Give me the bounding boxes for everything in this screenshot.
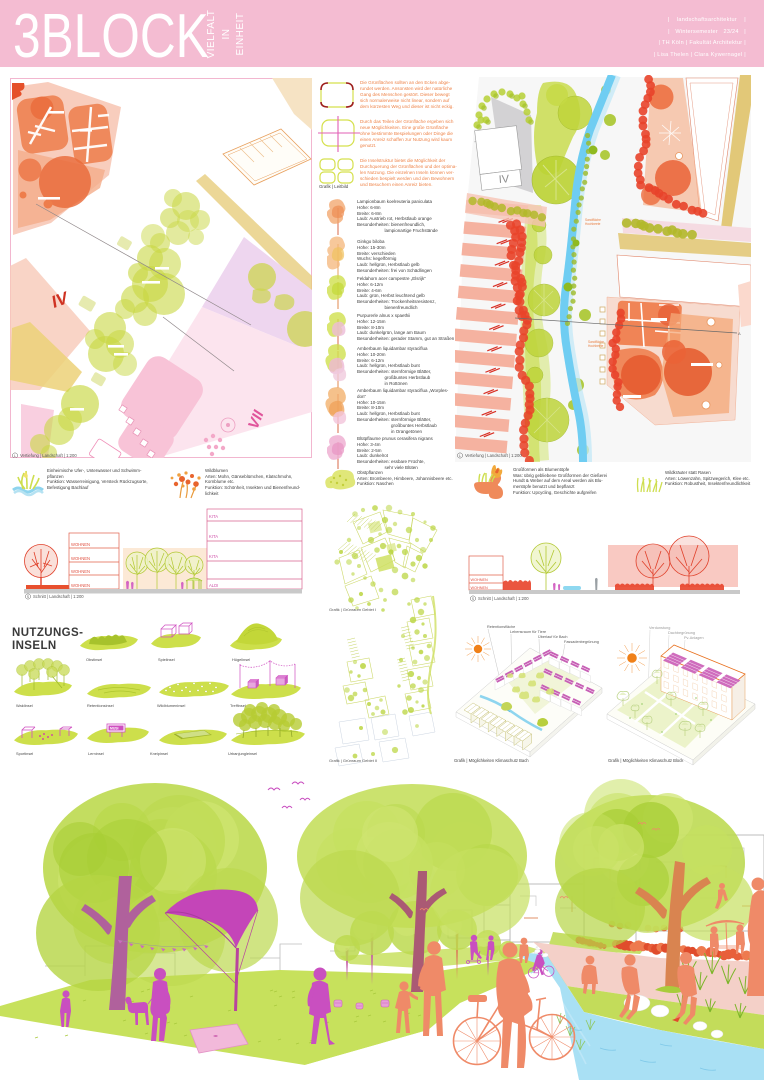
svg-text:IV: IV (498, 173, 510, 186)
svg-text:Grafik | Möglichkeiten Klimasc: Grafik | Möglichkeiten Klimaschutz Bach (454, 758, 529, 763)
svg-text:Hochbeete: Hochbeete (585, 222, 601, 226)
svg-text:Grafik | Möglichkeiten Klimasc: Grafik | Möglichkeiten Klimaschutz Block (608, 758, 684, 763)
svg-text:Retentionsfläche: Retentionsfläche (487, 625, 515, 629)
svg-text:NUTZUNGS-: NUTZUNGS- (12, 627, 83, 639)
svg-text:WOHNEN: WOHNEN (71, 569, 90, 574)
svg-text:WOHNEN: WOHNEN (71, 542, 90, 547)
svg-text:Wildblumeninsel: Wildblumeninsel (157, 703, 185, 708)
svg-text:Schnitt | Landschaft | 1:200: Schnitt | Landschaft | 1:200 (478, 596, 529, 601)
svg-text:Verdunstung: Verdunstung (649, 626, 670, 630)
svg-text:Hochbeete: Hochbeete (588, 344, 604, 348)
svg-text:Vertiefung | Landschaft | 1:20: Vertiefung | Landschaft | 1:200 (465, 453, 522, 458)
svg-text:L: L (459, 454, 461, 458)
svg-text:Fassadenbegrünung: Fassadenbegrünung (564, 640, 599, 644)
svg-text:Pv-Anlagen: Pv-Anlagen (684, 636, 704, 640)
svg-text:Vertiefung | Landschaft | 1:20: Vertiefung | Landschaft | 1:200 (20, 453, 77, 458)
svg-text:WOHNEN: WOHNEN (71, 556, 90, 561)
svg-text:WOHNEN: WOHNEN (71, 583, 90, 588)
svg-text:Lebensraum für Tiere: Lebensraum für Tiere (510, 630, 546, 634)
svg-text:KITA: KITA (209, 514, 218, 519)
svg-text:Grafik | Grünraum Gebiet I: Grafik | Grünraum Gebiet I (329, 607, 376, 612)
svg-text:WOHNEN: WOHNEN (471, 586, 489, 590)
svg-text:Lerninsel: Lerninsel (88, 751, 104, 756)
svg-text:Waldinsel: Waldinsel (16, 703, 33, 708)
svg-text:ALDI: ALDI (209, 583, 218, 588)
svg-text:Obstinsel: Obstinsel (86, 657, 102, 662)
svg-text:Überlauf für Bach: Überlauf für Bach (538, 635, 568, 639)
svg-text:KITA: KITA (209, 554, 218, 559)
svg-text:INSELN: INSELN (12, 640, 57, 652)
svg-text:KITA: KITA (209, 534, 218, 539)
svg-text:Kneipinsel: Kneipinsel (150, 751, 168, 756)
svg-text:Spielinsel: Spielinsel (158, 657, 175, 662)
svg-text:WOHNEN: WOHNEN (471, 578, 489, 582)
svg-text:Dachbegrünung: Dachbegrünung (668, 631, 695, 635)
svg-text:Urbanjungleinsel: Urbanjungleinsel (228, 751, 257, 756)
svg-text:MUSI: MUSI (110, 727, 119, 731)
svg-text:S: S (472, 597, 475, 601)
svg-text:Schnitt | Landschaft | 1:200: Schnitt | Landschaft | 1:200 (33, 594, 84, 599)
svg-text:Retentionsinsel: Retentionsinsel (87, 703, 114, 708)
svg-text:S: S (27, 595, 30, 599)
svg-text:A: A (738, 331, 741, 336)
svg-text:Treffinsel: Treffinsel (230, 703, 246, 708)
svg-text:L: L (14, 454, 16, 458)
svg-text:Sportinsel: Sportinsel (16, 751, 33, 756)
svg-text:Hügelinsel: Hügelinsel (232, 657, 250, 662)
